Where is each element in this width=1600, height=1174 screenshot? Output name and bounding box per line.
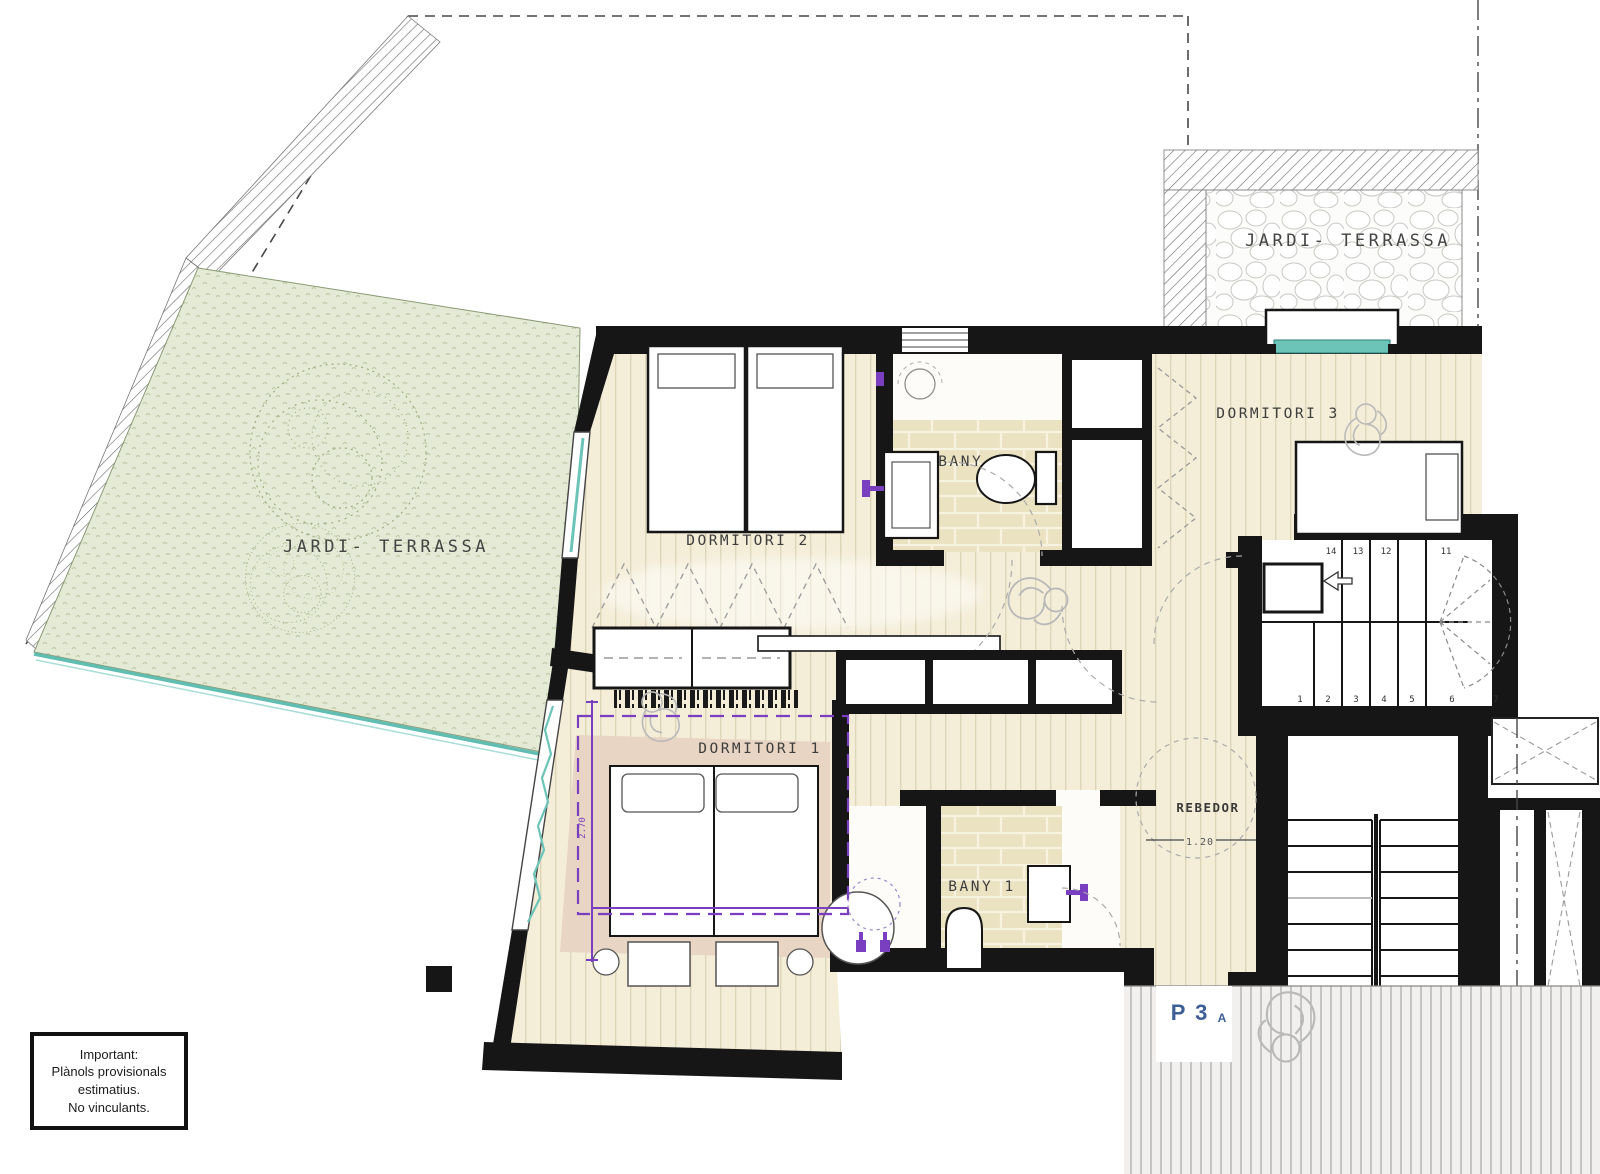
- garden-terrace-left: JARDI- TERRASSA: [34, 268, 580, 766]
- bath2-vestibule-floor: [892, 348, 1062, 420]
- wall-stair-middle: [1238, 706, 1518, 736]
- note-line: Plànols provisionals: [34, 1063, 184, 1081]
- foot-bench: [716, 942, 778, 986]
- pillow: [1426, 454, 1458, 520]
- step-number: 13: [1353, 547, 1364, 557]
- wall-bath1-top: [900, 790, 1156, 806]
- wall-column: [426, 966, 452, 992]
- step-number: 3: [1353, 695, 1358, 705]
- planter-greenery: [1274, 340, 1390, 353]
- staircase-lower: [1288, 736, 1458, 998]
- bedroom1-dimension: 2.70: [578, 817, 588, 839]
- floor-label: P 3: [1171, 1000, 1210, 1025]
- hall-dimension: 1.20: [1186, 837, 1214, 848]
- watermark: [602, 558, 982, 630]
- toilet-bowl: [977, 455, 1035, 503]
- stair-landing-box: [1264, 564, 1322, 612]
- note-line: estimatius.: [34, 1081, 184, 1099]
- wall-bath2-bottom-left: [876, 550, 944, 566]
- garden-right-label: JARDI- TERRASSA: [1245, 231, 1451, 251]
- step-number: 5: [1409, 695, 1414, 705]
- wall-stair-right-lower: [1458, 736, 1488, 998]
- bathroom1-label: BANY 1: [948, 879, 1015, 895]
- bedroom1-label: DORMITORI 1: [698, 741, 822, 757]
- wall-shower-divider: [926, 806, 941, 950]
- hall-label: REBEDOR: [1176, 800, 1239, 815]
- upper-shaft: [1492, 718, 1598, 784]
- bedroom3-label: DORMITORI 3: [1216, 406, 1340, 422]
- stool: [593, 949, 619, 975]
- toilet-tank: [1036, 452, 1056, 504]
- step-number: 14: [1326, 547, 1337, 557]
- wall-stair-right-upper: [1492, 514, 1518, 712]
- floor-label-suffix: A: [1218, 1011, 1227, 1025]
- foot-bench: [628, 942, 690, 986]
- sliding-door-panel: [758, 636, 1000, 651]
- pillow: [658, 354, 735, 388]
- step-number: 2: [1325, 695, 1330, 705]
- closet-hangers: [614, 690, 798, 708]
- planter: [1266, 310, 1398, 354]
- note-line: No vinculants.: [34, 1099, 184, 1117]
- step-number: 12: [1381, 547, 1392, 557]
- pillow: [716, 774, 798, 812]
- floor-plan-drawing: JARDI- TERRASSA JARDI- TERRASSA: [0, 0, 1600, 1174]
- wall-stair-left-upper: [1238, 536, 1262, 712]
- bath1-door-opening: [1056, 790, 1100, 806]
- step-number: 4: [1381, 695, 1386, 705]
- shelving-block-units: [1072, 360, 1142, 548]
- disclaimer-note-box: Important: Plànols provisionals estimati…: [30, 1032, 188, 1130]
- garden-lawn: [34, 268, 580, 758]
- staircase-upper: 14 13 12 11 1 2 3 4 5 6 7: [1262, 540, 1511, 706]
- step-number: 7: [1493, 695, 1498, 705]
- stair-handrail: [1374, 814, 1378, 994]
- elevator-shaft-area: [1488, 718, 1600, 1000]
- step-number: 1: [1297, 695, 1302, 705]
- note-line: Important:: [34, 1046, 184, 1064]
- stool: [787, 949, 813, 975]
- side-table: [822, 892, 894, 964]
- sink: [1028, 866, 1070, 922]
- step-number: 11: [1441, 547, 1452, 557]
- wall-stair-left-lower: [1256, 736, 1288, 998]
- fixture-mark: [876, 372, 884, 386]
- bedroom2-label: DORMITORI 2: [686, 533, 810, 549]
- step-number: 6: [1449, 695, 1454, 705]
- garden-left-label: JARDI- TERRASSA: [283, 537, 489, 557]
- pillow: [757, 354, 833, 388]
- landing-deck: P 3 A: [1124, 986, 1600, 1174]
- toilet: [946, 908, 982, 968]
- floor-plan-page: JARDI- TERRASSA JARDI- TERRASSA: [0, 0, 1600, 1174]
- pillow: [622, 774, 704, 812]
